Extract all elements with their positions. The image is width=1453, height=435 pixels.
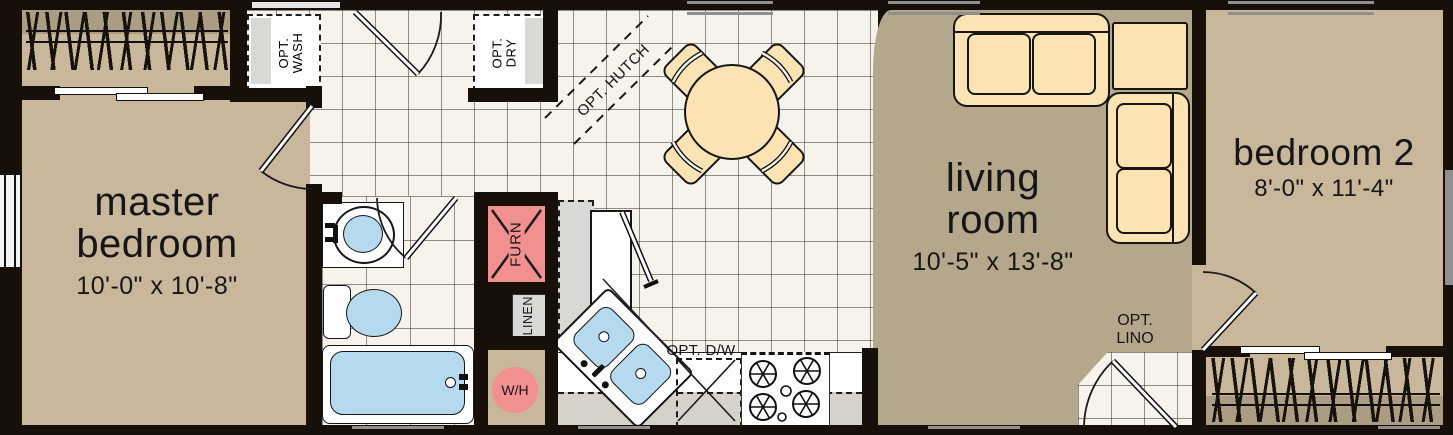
tub-spout xyxy=(459,374,468,380)
window-bedroom2-top xyxy=(1228,1,1374,15)
toilet-bowl xyxy=(346,289,402,337)
master-bedroom-name-line1: master xyxy=(94,182,219,224)
vanity-faucet-spout xyxy=(333,225,338,243)
window-laundry-top xyxy=(252,2,340,8)
stove xyxy=(741,352,830,428)
opt-dry-label: OPT.DRY xyxy=(490,38,518,69)
bedroom2-name: bedroom 2 xyxy=(1233,134,1414,172)
bedroom2-closet-hanging-clothes xyxy=(1210,358,1440,422)
wall-dryer-bottom xyxy=(468,88,548,102)
sink-drain-left xyxy=(596,329,612,345)
opt-lino-line2: LINO xyxy=(1096,330,1174,348)
window-dining-top xyxy=(687,1,773,15)
tub-faucet-knob xyxy=(445,377,456,388)
dining-table xyxy=(684,64,780,160)
window-living-bottom xyxy=(928,426,1020,435)
opt-washer-box: OPT.WASH xyxy=(247,14,321,92)
sink-faucet-knob-2 xyxy=(600,380,610,390)
bedroom2-closet-slider-2 xyxy=(1304,352,1392,360)
master-closet-rod xyxy=(26,30,228,43)
living-room-label: living room 10'-5" x 13'-8" xyxy=(878,158,1108,277)
window-pane-line-1 xyxy=(4,175,6,267)
sofa xyxy=(953,13,1110,107)
wall-living-bedroom2-upper xyxy=(1192,10,1206,265)
wall-kitchen-living-bottom xyxy=(862,348,878,425)
loveseat-cushion-bottom xyxy=(1116,168,1172,234)
tub-spout-2 xyxy=(459,384,468,390)
bathtub xyxy=(322,345,474,424)
floor-plan: OPT.WASH OPT.DRY xyxy=(0,0,1453,435)
window-master-left xyxy=(0,173,20,269)
bedroom2-closet-rod xyxy=(1212,393,1440,406)
opt-lino-label: OPT. LINO xyxy=(1096,312,1174,349)
window-kitchen-bottom xyxy=(578,426,650,435)
master-bedroom-dimensions: 10'-0" x 10'-8" xyxy=(76,272,237,301)
sink-faucet-spout xyxy=(591,364,605,378)
bedroom2-label: bedroom 2 8'-0" x 11'-4" xyxy=(1214,134,1434,203)
master-bedroom-label: master bedroom 10'-0" x 10'-8" xyxy=(32,182,282,301)
sofa-back xyxy=(955,15,1108,33)
washer-panel xyxy=(251,18,271,84)
loveseat-back xyxy=(1172,94,1188,242)
wall-bath-top-stub xyxy=(306,192,342,204)
furnace-label: FURN xyxy=(488,206,545,282)
wall-master-right-lower xyxy=(306,184,322,425)
sink-drain-right xyxy=(633,366,649,382)
window-bath-bottom xyxy=(352,426,444,435)
living-room-dimensions: 10'-5" x 13'-8" xyxy=(912,248,1073,277)
opt-wash-label: OPT.WASH xyxy=(277,33,305,74)
bedroom2-dimensions: 8'-0" x 11'-4" xyxy=(1254,175,1393,203)
living-room-name-line1: living xyxy=(946,158,1040,200)
wall-kitchen-left xyxy=(545,192,558,425)
master-bedroom-name-line2: bedroom xyxy=(76,224,237,266)
wall-master-right-upper xyxy=(306,86,322,108)
corner-table xyxy=(1112,22,1188,90)
opt-lino-line1: OPT. xyxy=(1096,312,1174,330)
window-living-top xyxy=(888,1,980,15)
opt-dryer-box: OPT.DRY xyxy=(473,14,551,92)
wall-living-bedroom2-lower xyxy=(1192,350,1206,425)
sofa-cushion-right xyxy=(1032,33,1096,95)
window-pane-line-2 xyxy=(14,175,16,267)
window-bedroom2-right xyxy=(1445,170,1453,285)
vanity-sink-basin xyxy=(343,215,383,253)
linen-label: LINEN xyxy=(512,294,545,338)
master-closet-slider-2 xyxy=(116,93,204,101)
bedroom2-door-gap-floor xyxy=(1192,265,1206,350)
sink-faucet-knob-1 xyxy=(579,359,589,369)
wall-bedroom2-closet-right xyxy=(1386,346,1443,357)
wall-bottom-border xyxy=(0,425,1453,435)
loveseat xyxy=(1106,92,1190,244)
window-bedroom2-bottom xyxy=(1378,426,1440,435)
sofa-cushion-left xyxy=(967,33,1031,95)
water-heater-label: W/H xyxy=(492,367,538,413)
bathroom-vanity xyxy=(322,202,404,268)
living-room-name-line2: room xyxy=(946,200,1039,242)
opt-dishwasher-box xyxy=(676,358,742,428)
opt-hutch-label: OPT. HUTCH xyxy=(553,40,673,120)
opt-dishwasher-label: OPT. D/W xyxy=(656,342,746,359)
loveseat-cushion-top xyxy=(1116,103,1172,169)
